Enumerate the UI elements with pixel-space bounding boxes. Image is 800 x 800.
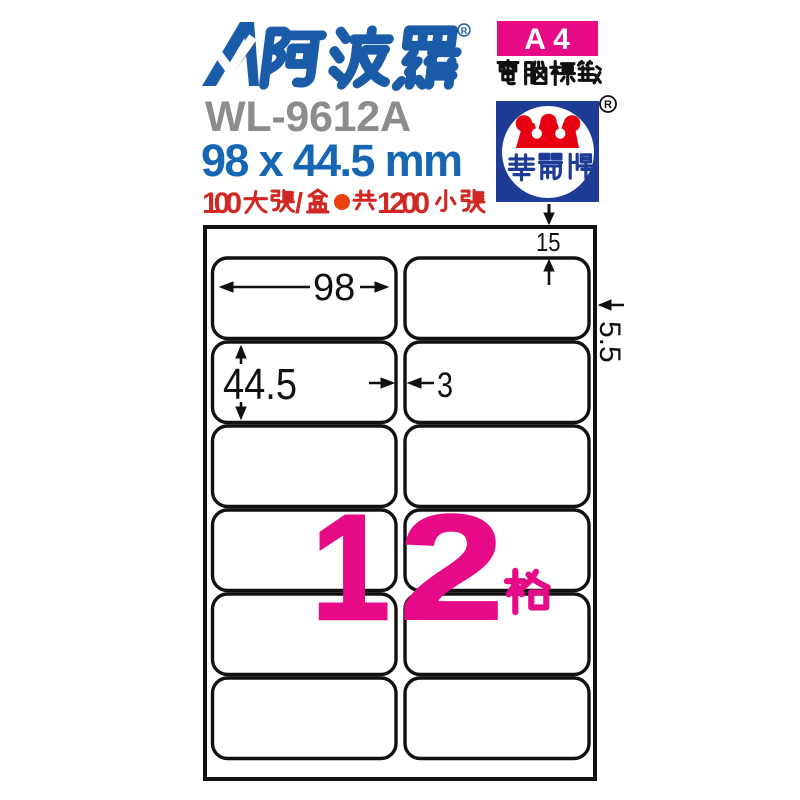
- svg-text:WL-9612A: WL-9612A: [205, 93, 411, 141]
- svg-text:100: 100: [202, 187, 242, 220]
- svg-text:R: R: [461, 26, 468, 36]
- svg-text:/: /: [295, 188, 303, 220]
- svg-text:2: 2: [399, 484, 504, 651]
- svg-text:R: R: [604, 99, 612, 111]
- svg-text:44.5: 44.5: [223, 360, 297, 409]
- svg-text:98: 98: [313, 267, 355, 309]
- svg-text:1200: 1200: [377, 187, 430, 220]
- svg-text:3: 3: [437, 366, 453, 405]
- svg-text:5.5: 5.5: [593, 321, 626, 363]
- svg-text:98 x 44.5 mm: 98 x 44.5 mm: [201, 135, 463, 186]
- svg-text:15: 15: [536, 227, 561, 257]
- svg-text:A 4: A 4: [524, 23, 570, 56]
- svg-text:1: 1: [311, 485, 390, 652]
